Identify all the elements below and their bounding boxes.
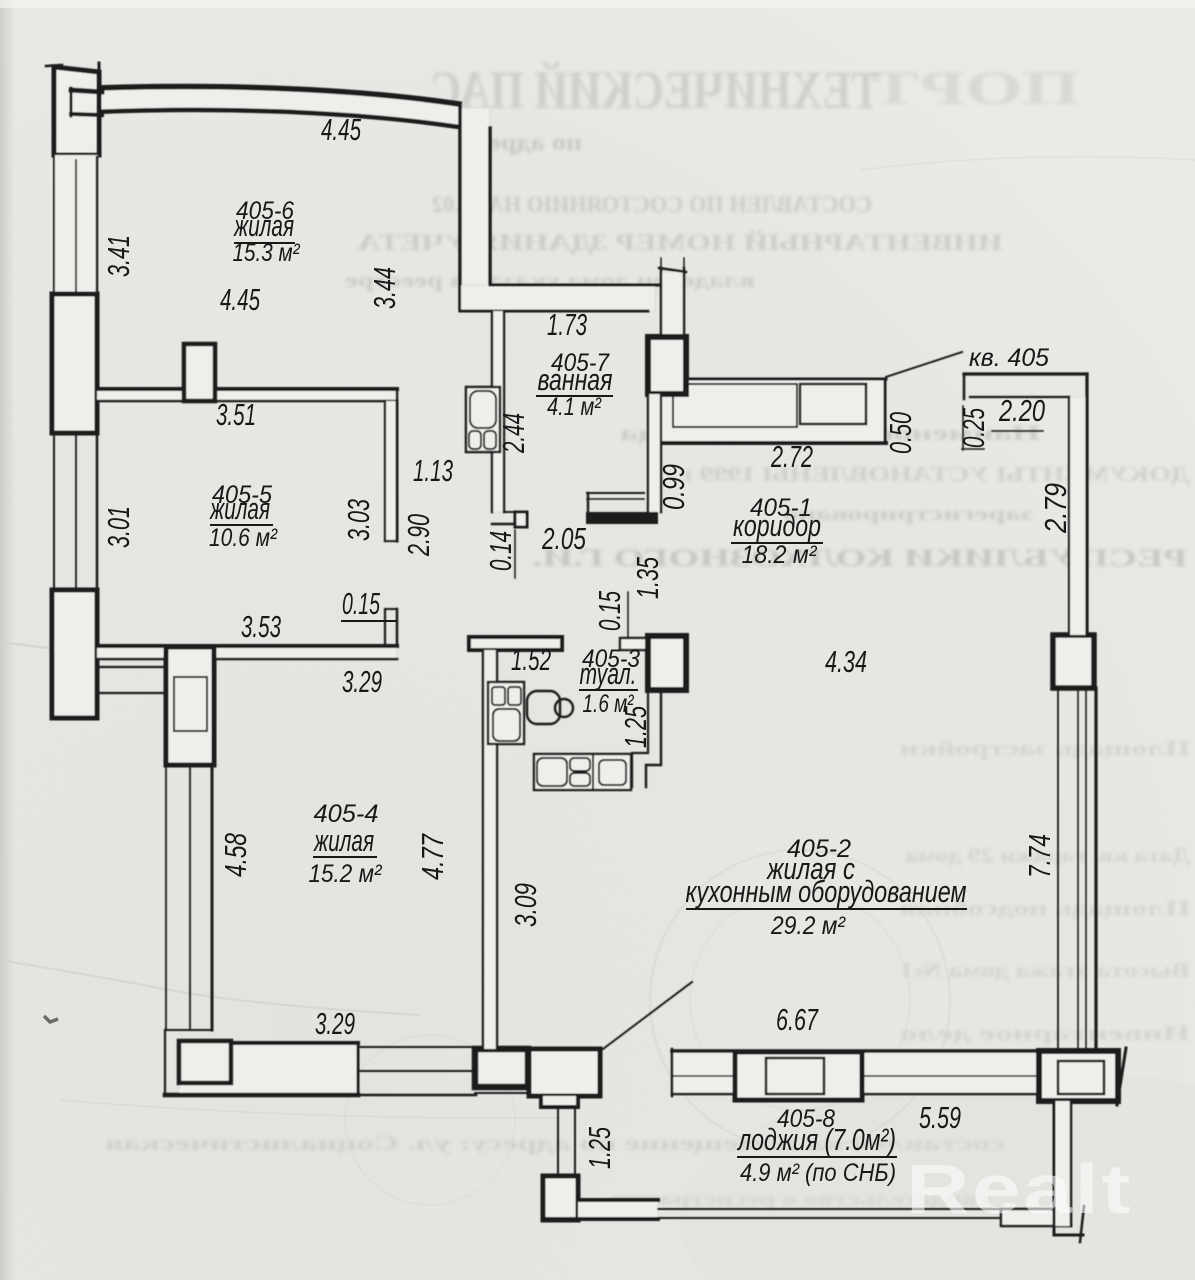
svg-text:0.99: 0.99	[656, 464, 691, 510]
svg-text:0.15: 0.15	[592, 591, 627, 631]
svg-text:кухонным оборудованием: кухонным оборудованием	[686, 874, 967, 909]
svg-text:2.79: 2.79	[1038, 483, 1073, 534]
svg-text:ванная: ванная	[538, 362, 613, 397]
svg-text:3.03: 3.03	[341, 499, 376, 541]
svg-text:жилая: жилая	[313, 823, 374, 858]
svg-text:0.14: 0.14	[483, 531, 518, 571]
svg-text:2.20: 2.20	[998, 393, 1045, 428]
svg-text:3.29: 3.29	[315, 1006, 355, 1041]
svg-text:1.25: 1.25	[582, 1126, 617, 1169]
svg-text:ТЕХНИЧЕСКИЙ ПАС: ТЕХНИЧЕСКИЙ ПАС	[430, 60, 880, 120]
svg-text:3.41: 3.41	[101, 235, 136, 277]
svg-text:2.90: 2.90	[401, 514, 436, 557]
svg-text:6.67: 6.67	[776, 1002, 819, 1037]
svg-text:жилая: жилая	[209, 491, 270, 526]
svg-text:2.44: 2.44	[496, 413, 531, 454]
svg-text:4.34: 4.34	[825, 644, 867, 679]
svg-text:4.1 м²: 4.1 м²	[547, 393, 602, 421]
svg-text:18.2 м²: 18.2 м²	[742, 541, 819, 569]
svg-text:туал.: туал.	[580, 656, 637, 691]
svg-text:Высота этажа дома №1: Высота этажа дома №1	[900, 958, 1190, 982]
svg-text:3.53: 3.53	[241, 609, 281, 644]
svg-text:15.3 м²: 15.3 м²	[233, 239, 301, 267]
svg-text:5.59: 5.59	[919, 1100, 961, 1135]
svg-text:3.51: 3.51	[216, 397, 256, 432]
svg-text:ПОРТ: ПОРТ	[870, 62, 1080, 115]
svg-text:Площадь застройки: Площадь застройки	[900, 736, 1190, 760]
svg-text:0.25: 0.25	[956, 408, 991, 448]
svg-text:4.9 м² (по СНБ): 4.9 м² (по СНБ)	[740, 1159, 896, 1187]
svg-text:0.50: 0.50	[883, 412, 918, 454]
svg-text:4.45: 4.45	[321, 112, 361, 147]
svg-text:4.58: 4.58	[218, 832, 253, 877]
svg-text:29.2 м²: 29.2 м²	[770, 912, 846, 940]
svg-text:1.73: 1.73	[547, 307, 587, 342]
svg-text:кв. 405: кв. 405	[969, 344, 1049, 372]
svg-text:3.09: 3.09	[508, 883, 543, 927]
svg-text:0.15: 0.15	[342, 586, 380, 621]
svg-text:2.05: 2.05	[541, 521, 586, 556]
svg-text:4.45: 4.45	[220, 282, 260, 317]
svg-text:жилая: жилая	[233, 208, 294, 243]
svg-text:3.44: 3.44	[367, 267, 402, 309]
svg-text:1.25: 1.25	[618, 705, 653, 748]
svg-text:4.77: 4.77	[415, 833, 450, 880]
svg-text:3.01: 3.01	[101, 506, 136, 548]
svg-text:СОСТАВЛЕН ПО СОСТОЯНИЮ НА 03.0: СОСТАВЛЕН ПО СОСТОЯНИЮ НА 03.02	[432, 192, 872, 217]
svg-text:ИНВЕНТАРНЫЙ НОМЕР ЗДАНИЯ УЧЕТА: ИНВЕНТАРНЫЙ НОМЕР ЗДАНИЯ УЧЕТА	[357, 230, 1003, 255]
svg-text:коридор: коридор	[733, 508, 821, 543]
svg-text:1.35: 1.35	[630, 556, 665, 599]
svg-text:ДОКУМЕНТЫ УСТАНОВЛЕНЫ 1999 г: ДОКУМЕНТЫ УСТАНОВЛЕНЫ 1999 г	[680, 462, 1190, 486]
svg-text:3.29: 3.29	[342, 664, 382, 699]
svg-text:15.2 м²: 15.2 м²	[309, 860, 383, 888]
svg-text:1.52: 1.52	[511, 642, 551, 677]
svg-text:лоджия (7.0м²): лоджия (7.0м²)	[737, 1122, 896, 1157]
svg-text:2.72: 2.72	[770, 439, 813, 474]
svg-text:Realt: Realt	[906, 1150, 1133, 1228]
svg-text:7.74: 7.74	[1022, 834, 1057, 878]
svg-text:10.6 м²: 10.6 м²	[209, 524, 278, 552]
svg-text:1.13: 1.13	[413, 453, 453, 488]
